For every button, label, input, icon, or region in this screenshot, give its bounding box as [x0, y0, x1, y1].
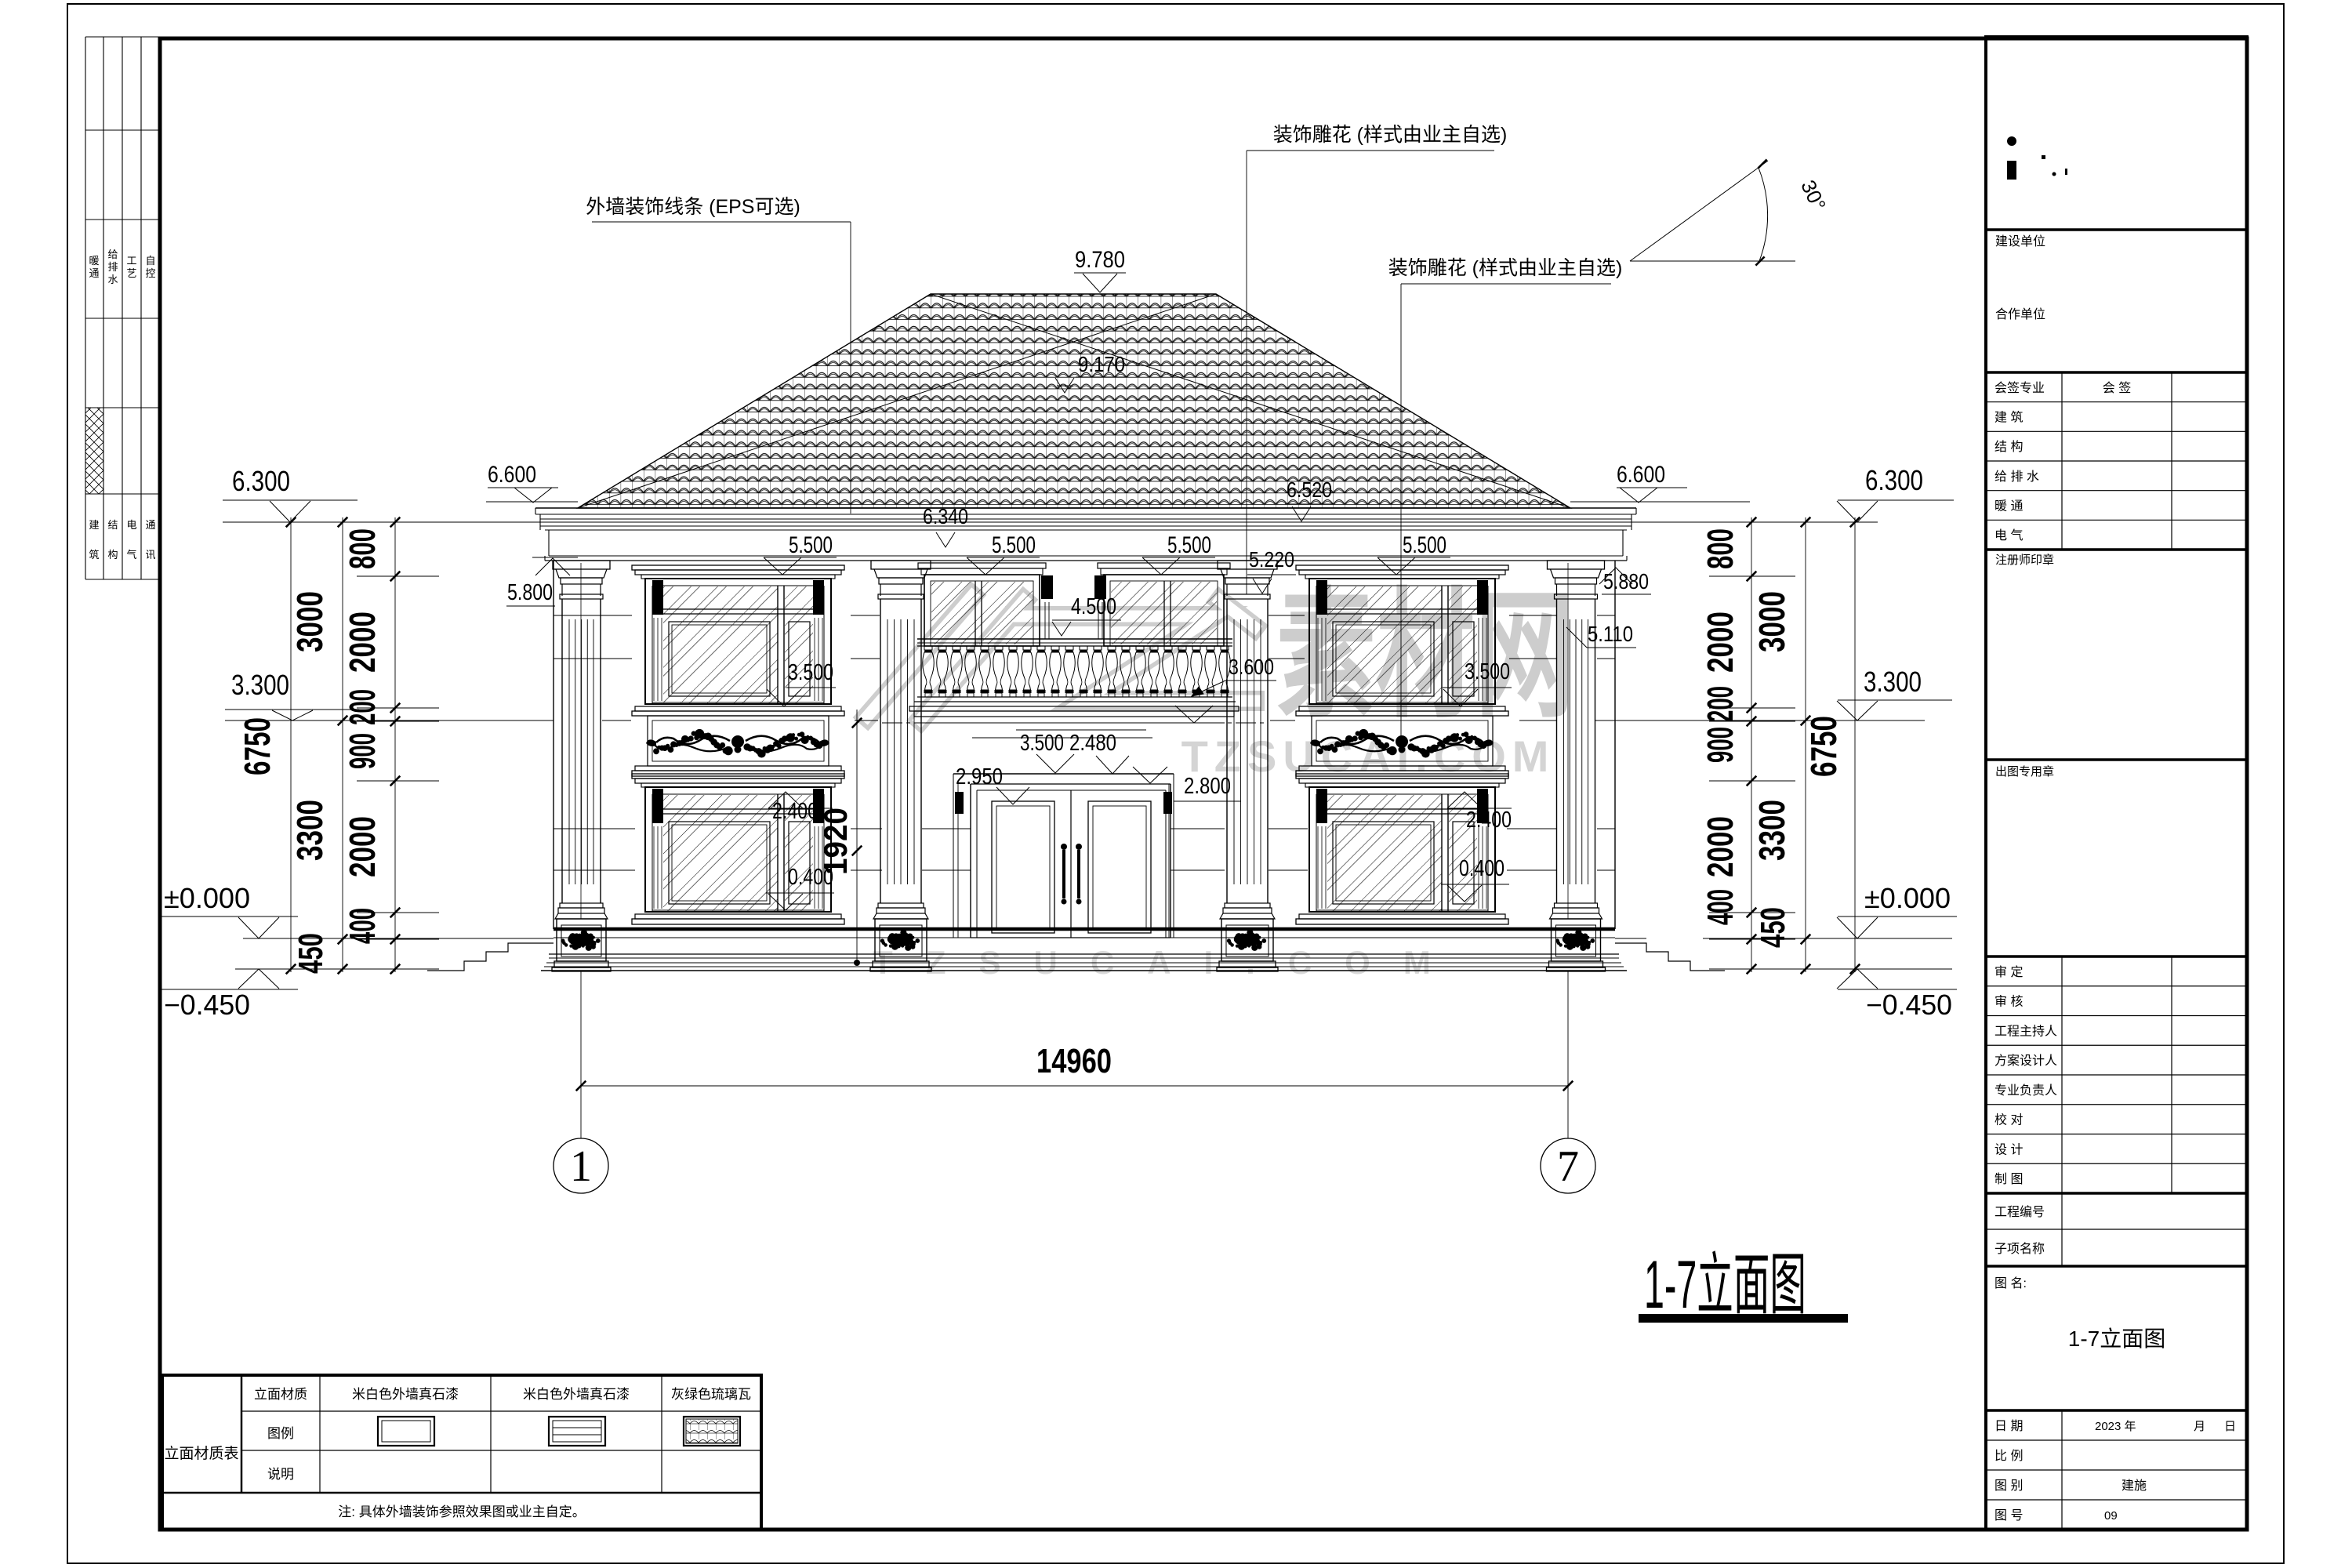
svg-text:注: 具体外墙装饰参照效果图或业主自定。: 注: 具体外墙装饰参照效果图或业主自定。	[338, 1504, 585, 1519]
svg-text:−0.450: −0.450	[1866, 989, 1952, 1021]
svg-text:讯: 讯	[145, 549, 155, 561]
svg-text:说明: 说明	[267, 1467, 294, 1482]
svg-text:建 筑: 建 筑	[1994, 411, 2023, 425]
svg-text:米白色外墙真石漆: 米白色外墙真石漆	[352, 1387, 459, 1402]
svg-text:1: 1	[570, 1142, 592, 1191]
svg-text:工程编号: 工程编号	[1994, 1205, 2045, 1219]
svg-text:日: 日	[2224, 1420, 2236, 1433]
svg-text:1-7立面图: 1-7立面图	[1644, 1247, 1806, 1323]
svg-text:5.880: 5.880	[1603, 569, 1649, 593]
svg-text:给 排 水: 给 排 水	[1994, 470, 2039, 484]
svg-text:合作单位: 合作单位	[1995, 307, 2045, 321]
svg-text:会签专业: 会签专业	[1994, 381, 2045, 395]
svg-text:自: 自	[145, 255, 155, 267]
svg-text:6.600: 6.600	[488, 462, 536, 488]
svg-text:200: 200	[1700, 686, 1740, 722]
svg-text:6750: 6750	[237, 717, 278, 775]
svg-text:5.800: 5.800	[507, 580, 553, 605]
svg-text:通: 通	[145, 519, 155, 531]
svg-text:4.500: 4.500	[1071, 594, 1116, 619]
svg-text:建: 建	[89, 519, 99, 531]
svg-text:排: 排	[107, 261, 118, 273]
svg-text:专业负责人: 专业负责人	[1994, 1083, 2057, 1098]
svg-text:2000: 2000	[1700, 612, 1740, 673]
svg-text:5.220: 5.220	[1249, 547, 1294, 572]
svg-text:审 核: 审 核	[1994, 995, 2023, 1009]
svg-text:装饰雕花 (样式由业主自选): 装饰雕花 (样式由业主自选)	[1388, 257, 1623, 279]
svg-text:米白色外墙真石漆: 米白色外墙真石漆	[523, 1387, 630, 1402]
svg-text:400: 400	[1700, 889, 1740, 925]
svg-text:5.500: 5.500	[1403, 532, 1446, 558]
svg-text:2.800: 2.800	[1184, 774, 1231, 799]
svg-text:月: 月	[2194, 1420, 2205, 1433]
svg-text:6.520: 6.520	[1287, 477, 1332, 502]
svg-text:校 对: 校 对	[1994, 1113, 2023, 1127]
svg-text:审 定: 审 定	[1994, 965, 2023, 979]
svg-text:艺: 艺	[126, 267, 136, 279]
svg-text:水: 水	[107, 274, 118, 285]
svg-text:装饰雕花 (样式由业主自选): 装饰雕花 (样式由业主自选)	[1273, 124, 1508, 146]
svg-text:图 号: 图 号	[1994, 1508, 2023, 1523]
svg-text:图例: 图例	[267, 1426, 294, 1441]
svg-text:900: 900	[342, 733, 383, 769]
svg-text:2.400: 2.400	[1466, 808, 1512, 833]
svg-text:09: 09	[2104, 1509, 2118, 1523]
svg-text:2000: 2000	[1700, 816, 1740, 877]
svg-text:3.600: 3.600	[1229, 655, 1274, 679]
svg-text:工程主持人: 工程主持人	[1994, 1024, 2057, 1038]
svg-text:2.950: 2.950	[956, 764, 1003, 789]
svg-text:3000: 3000	[1751, 591, 1792, 652]
svg-text:14960: 14960	[1036, 1042, 1112, 1080]
svg-text:设 计: 设 计	[1994, 1142, 2023, 1156]
svg-text:结 构: 结 构	[1994, 440, 2023, 454]
svg-text:3.500: 3.500	[788, 660, 833, 685]
svg-text:7: 7	[1557, 1142, 1579, 1191]
svg-text:−0.450: −0.450	[164, 989, 250, 1021]
svg-text:构: 构	[107, 549, 118, 561]
svg-text:结: 结	[107, 519, 118, 531]
svg-text:800: 800	[342, 528, 383, 569]
svg-text:6.300: 6.300	[232, 465, 290, 497]
svg-text:控: 控	[145, 267, 155, 279]
svg-text:5.500: 5.500	[1167, 532, 1211, 558]
svg-text:建施: 建施	[2122, 1479, 2147, 1493]
svg-text:暖 通: 暖 通	[1994, 499, 2023, 514]
svg-text:3.500: 3.500	[1020, 731, 1064, 756]
svg-text:3000: 3000	[289, 591, 330, 652]
svg-text:200: 200	[342, 689, 383, 725]
svg-text:图 别: 图 别	[1994, 1479, 2023, 1493]
svg-text:会 签: 会 签	[2103, 381, 2131, 395]
svg-text:6.600: 6.600	[1617, 462, 1665, 488]
svg-text:3300: 3300	[289, 800, 330, 861]
svg-text:±0.000: ±0.000	[1864, 882, 1951, 914]
svg-text:400: 400	[342, 908, 383, 944]
svg-text:3.500: 3.500	[1465, 659, 1510, 684]
svg-text:筑: 筑	[89, 549, 99, 561]
svg-text:9.780: 9.780	[1075, 247, 1125, 273]
svg-text:灰绿色琉璃瓦: 灰绿色琉璃瓦	[671, 1387, 751, 1402]
svg-text:900: 900	[1700, 727, 1740, 763]
svg-text:0.400: 0.400	[1459, 856, 1504, 881]
svg-text:2.480: 2.480	[1069, 731, 1116, 756]
svg-text:800: 800	[1700, 528, 1740, 569]
svg-text:日 期: 日 期	[1994, 1419, 2023, 1433]
svg-text:2023 年: 2023 年	[2095, 1420, 2136, 1433]
svg-text:立面材质: 立面材质	[254, 1387, 307, 1402]
svg-text:给: 给	[107, 249, 118, 260]
svg-text:立面材质表: 立面材质表	[164, 1445, 238, 1462]
svg-text:±0.000: ±0.000	[164, 882, 250, 914]
svg-text:5.500: 5.500	[789, 532, 833, 558]
svg-text:1-7立面图: 1-7立面图	[2068, 1327, 2165, 1351]
svg-text:外墙装饰线条 (EPS可选): 外墙装饰线条 (EPS可选)	[586, 196, 800, 218]
svg-text:电 气: 电 气	[1994, 528, 2023, 543]
svg-text:建设单位: 建设单位	[1995, 234, 2045, 249]
svg-text:2000: 2000	[342, 816, 383, 877]
svg-text:制 图: 制 图	[1994, 1172, 2023, 1186]
svg-text:气: 气	[126, 549, 136, 561]
svg-text:0.400: 0.400	[788, 865, 833, 890]
svg-text:450: 450	[292, 933, 330, 974]
svg-text:方案设计人: 方案设计人	[1994, 1054, 2057, 1068]
svg-text:6.300: 6.300	[1865, 464, 1923, 496]
svg-text:3.300: 3.300	[1864, 666, 1922, 698]
svg-text:450: 450	[1754, 907, 1792, 948]
svg-text:3.300: 3.300	[231, 669, 289, 701]
svg-text:9.170: 9.170	[1078, 352, 1125, 376]
svg-text:通: 通	[89, 267, 99, 279]
svg-text:出图专用章: 出图专用章	[1995, 764, 2054, 779]
svg-text:2.400: 2.400	[772, 799, 818, 824]
svg-text:5.110: 5.110	[1588, 622, 1633, 646]
svg-text:5.500: 5.500	[992, 532, 1036, 558]
svg-text:子项名称: 子项名称	[1994, 1242, 2045, 1256]
svg-text:6.340: 6.340	[923, 504, 968, 528]
svg-text:3300: 3300	[1751, 800, 1792, 861]
svg-text:比 例: 比 例	[1994, 1449, 2023, 1463]
svg-text:注册师印章: 注册师印章	[1995, 553, 2054, 567]
svg-text:6750: 6750	[1803, 716, 1844, 777]
svg-text:图 名:: 图 名:	[1994, 1276, 2027, 1290]
svg-text:2000: 2000	[342, 612, 383, 673]
svg-text:电: 电	[126, 519, 136, 531]
svg-text:工: 工	[126, 255, 136, 267]
svg-text:暖: 暖	[89, 255, 99, 267]
